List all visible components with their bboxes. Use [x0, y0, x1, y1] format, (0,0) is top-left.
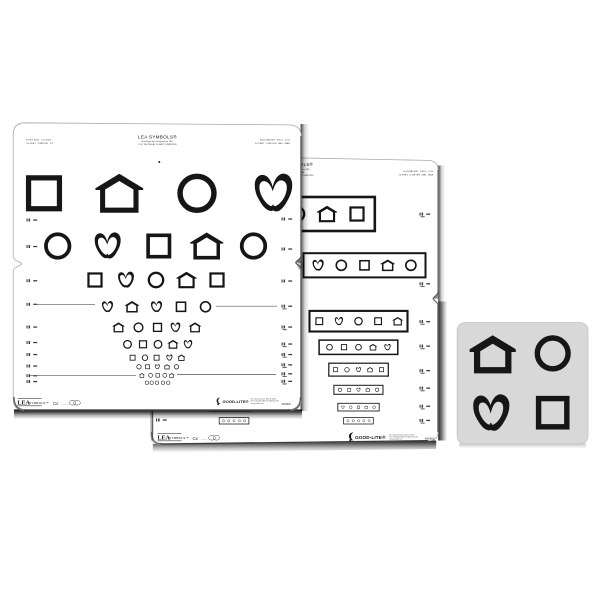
- svg-text:GOOD-LITE®: GOOD-LITE®: [223, 399, 249, 404]
- svg-text:Cε: Cε: [53, 401, 58, 406]
- svg-text:IN FEET 3 METER FT: IN FEET 3 METER FT: [27, 143, 54, 145]
- svg-text:GOOD-LITE®: GOOD-LITE®: [355, 434, 386, 440]
- svg-text:20 FEET 6 METER MAL MAR: 20 FEET 6 METER MAL MAR: [398, 173, 433, 176]
- svg-text:LEA SYMBOLS®: LEA SYMBOLS®: [138, 133, 177, 139]
- svg-text:Cε: Cε: [193, 436, 198, 441]
- svg-text:EQUIVALENT DECI- LOG: EQUIVALENT DECI- LOG: [260, 139, 290, 142]
- svg-text:Phone 800-362-3860 Fax 888-36: Phone 800-362-3860 Fax 888-362-2576: [251, 401, 280, 403]
- svg-text:#250800: #250800: [425, 438, 435, 441]
- svg-text:———: ———: [201, 439, 208, 441]
- svg-text:SYMBOLS™: SYMBOLS™: [169, 436, 189, 440]
- svg-text:Phone 800-362-3860 Fax 888-36: Phone 800-362-3860 Fax 888-362-2576: [389, 437, 418, 439]
- svg-text:FOR TESTING AT 10 FEET (3 METE: FOR TESTING AT 10 FEET (3 METERS): [139, 143, 177, 146]
- svg-text:20 FEET 6 METER MAL MAR: 20 FEET 6 METER MAL MAR: [255, 142, 290, 145]
- svg-text:#250800: #250800: [282, 403, 292, 406]
- svg-text:EYES SIZE 1/2 SIZE: EYES SIZE 1/2 SIZE: [27, 140, 52, 142]
- svg-text:EQUIVALENT DECI- LOG: EQUIVALENT DECI- LOG: [404, 170, 434, 173]
- svg-text:SYMBOLS™: SYMBOLS™: [29, 401, 49, 405]
- svg-text:Developed by Lea Hyvärinen, M.: Developed by Lea Hyvärinen, M.D.: [141, 140, 174, 143]
- svg-text:———: ———: [62, 404, 69, 406]
